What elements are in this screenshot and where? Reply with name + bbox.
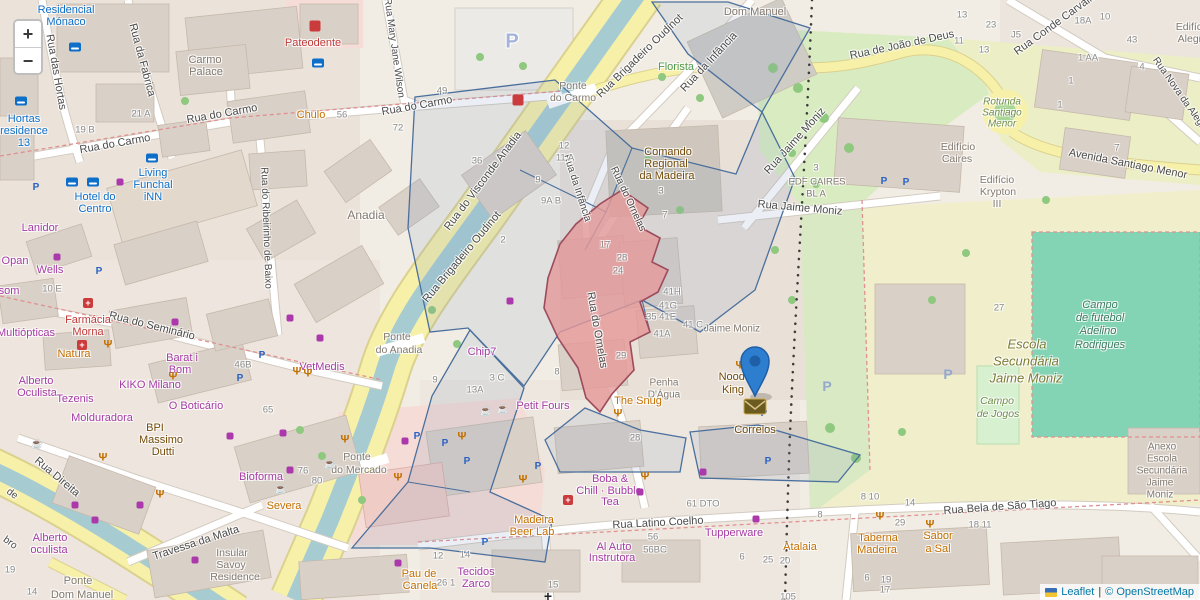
ukraine-flag-icon: [1045, 588, 1057, 597]
attribution-bar: Leaflet | © OpenStreetMap: [1040, 584, 1200, 600]
map-canvas[interactable]: [0, 0, 1200, 600]
leaflet-link[interactable]: Leaflet: [1061, 586, 1094, 598]
playing-field: [977, 366, 1019, 444]
football-pitch: [1032, 232, 1200, 437]
attribution-separator: |: [1098, 586, 1101, 598]
zoom-control: + −: [13, 19, 43, 75]
zoom-out-button[interactable]: −: [15, 47, 41, 73]
zoom-in-button[interactable]: +: [15, 21, 41, 47]
openstreetmap-link[interactable]: © OpenStreetMap: [1105, 586, 1194, 598]
map-viewport[interactable]: Rua do CarmoRua do CarmoRua do CarmoRua …: [0, 0, 1200, 600]
roundabout-green: [994, 101, 1016, 123]
